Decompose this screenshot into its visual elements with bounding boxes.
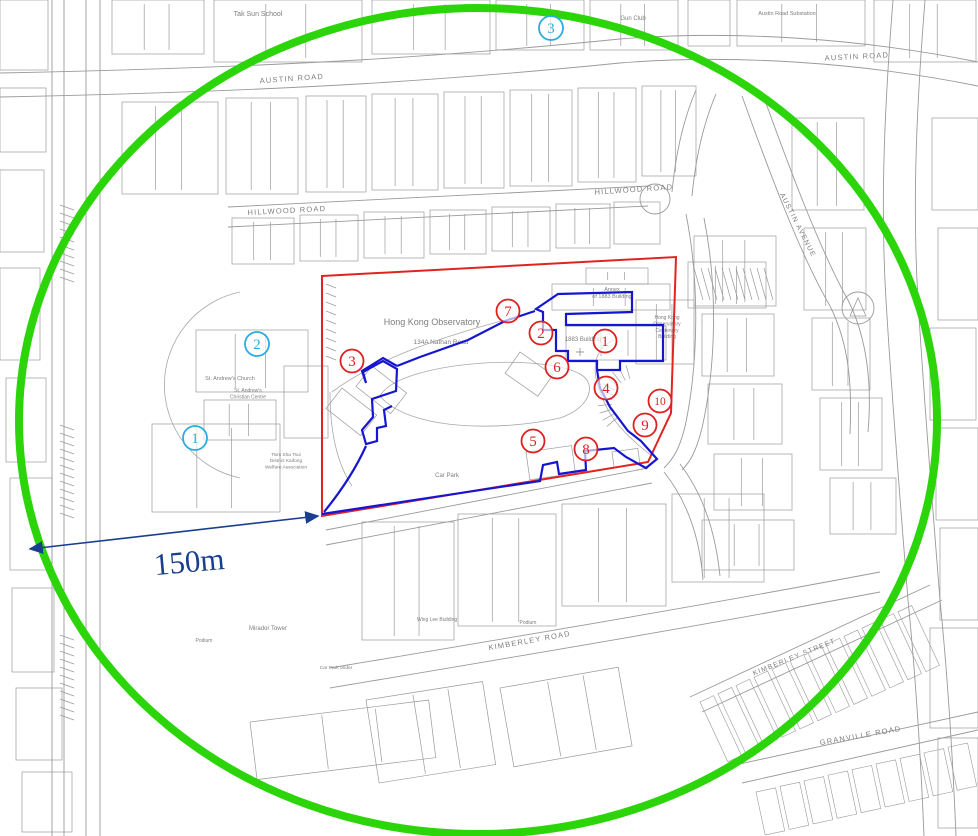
- svg-text:3: 3: [547, 21, 555, 37]
- place-label: Mirador Tower: [249, 626, 287, 632]
- red-marker-4: 4: [595, 377, 618, 400]
- place-label: Podium: [520, 620, 537, 626]
- svg-text:1: 1: [191, 431, 199, 447]
- svg-text:2: 2: [537, 326, 545, 342]
- red-marker-7: 7: [497, 300, 520, 323]
- red-marker-5: 5: [522, 430, 545, 453]
- svg-text:5: 5: [529, 434, 537, 450]
- place-label: Gun Club: [620, 16, 646, 22]
- red-marker-6: 6: [546, 356, 569, 379]
- place-label: Car Park under: [320, 665, 353, 671]
- svg-text:10: 10: [654, 396, 666, 408]
- place-label: Podium: [196, 638, 213, 644]
- red-marker-10: 10: [649, 390, 672, 413]
- svg-text:2: 2: [253, 337, 261, 353]
- svg-text:8: 8: [582, 442, 590, 458]
- place-label: Austin Road Substation: [758, 11, 815, 17]
- place-label: Hong Kong Observatory: [384, 317, 481, 327]
- svg-text:9: 9: [641, 418, 649, 434]
- cyan-marker-1: 1: [183, 426, 207, 450]
- place-label: Wing Lee Building: [417, 617, 458, 623]
- place-label: Car Park: [435, 473, 460, 479]
- map-canvas[interactable]: AUSTIN ROADAUSTIN ROADHILLWOOD ROADHILLW…: [0, 0, 978, 836]
- survey-map-page: AUSTIN ROADAUSTIN ROADHILLWOOD ROADHILLW…: [0, 0, 978, 836]
- svg-text:4: 4: [602, 381, 610, 397]
- red-marker-2: 2: [530, 322, 553, 345]
- red-marker-3: 3: [341, 350, 364, 373]
- svg-text:6: 6: [553, 360, 561, 376]
- place-label: St. Andrew'sChristian Centre: [230, 388, 266, 400]
- svg-text:7: 7: [504, 304, 512, 320]
- red-marker-9: 9: [634, 414, 657, 437]
- svg-text:1: 1: [601, 334, 609, 350]
- red-marker-1: 1: [594, 330, 617, 353]
- red-marker-8: 8: [575, 438, 598, 461]
- scale-label-150m: 150m: [152, 541, 225, 582]
- svg-text:3: 3: [348, 354, 356, 370]
- place-label: St. Andrew's Church: [205, 376, 255, 382]
- place-label: Tak Sun School: [234, 11, 283, 18]
- cyan-marker-2: 2: [245, 332, 269, 356]
- cyan-marker-3: 3: [539, 16, 563, 40]
